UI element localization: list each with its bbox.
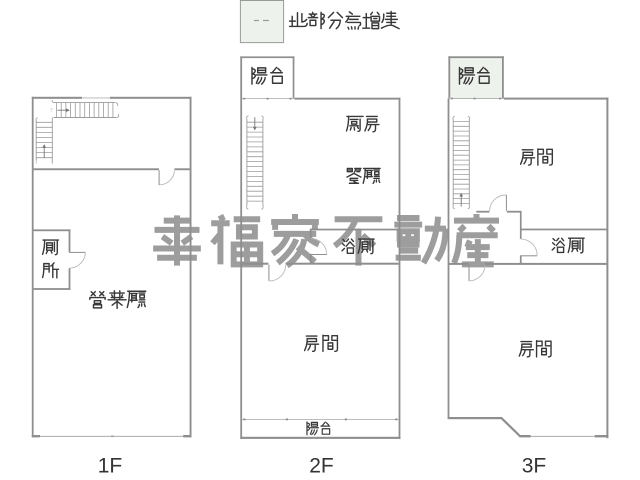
svg-text:3F: 3F [522, 455, 547, 478]
svg-text:2F: 2F [309, 455, 334, 478]
svg-text:1F: 1F [98, 455, 123, 478]
